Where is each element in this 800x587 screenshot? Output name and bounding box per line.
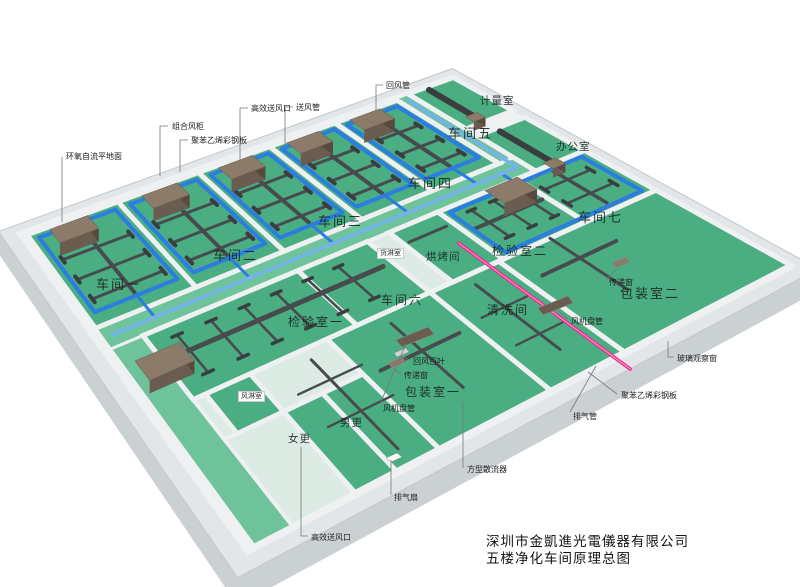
annotation-pass-window-2: 传递窗 <box>609 277 633 288</box>
room-label-cleaning-room: 清洗间 <box>487 301 529 318</box>
annotation-supply-duct: 送风管 <box>296 102 320 113</box>
room-label-cargo-shower: 货淋室 <box>377 248 404 259</box>
annotation-epoxy-floor: 环氧自流平地面 <box>66 151 122 162</box>
room-label-inspection-2: 检验室二 <box>492 242 548 259</box>
drawing-title: 五楼净化车间原理总图 <box>486 550 689 567</box>
room-label-workshop-6: 车间六 <box>381 291 423 308</box>
room-label-women-change: 女更 <box>288 431 311 446</box>
room-label-metering-room: 计量室 <box>480 93 515 108</box>
annotation-polystyrene-panel-1: 聚苯乙烯彩钢板 <box>191 135 247 146</box>
annotation-return-duct: 回风管 <box>386 80 410 91</box>
room-label-workshop-1: 车间一 <box>96 274 141 293</box>
room-label-baking-room: 烘烤间 <box>426 249 461 264</box>
room-label-men-change: 男更 <box>340 415 363 430</box>
cleanroom-isometric-diagram: 车间一 车间二 车间三 车间四 车间五 车间六 车间七 检验室一 检验室二 烘烤… <box>0 0 800 587</box>
room-label-workshop-7: 车间七 <box>578 207 623 226</box>
annotation-return-louver: 回风百叶 <box>413 356 445 367</box>
annotation-combined-ahu: 组合风柜 <box>172 121 204 132</box>
title-block: 深圳市金凱進光電儀器有限公司 五楼净化车间原理总图 <box>486 533 689 567</box>
annotation-exhaust-fan: 排气扇 <box>394 492 418 503</box>
room-label-workshop-4: 车间四 <box>408 173 453 192</box>
annotation-exhaust-pipe: 排气管 <box>573 411 597 422</box>
room-label-workshop-3: 车间三 <box>318 211 363 230</box>
annotation-hepa-outlet-1: 高效送风口 <box>251 103 291 114</box>
annotation-pass-window-1: 传递窗 <box>404 370 428 381</box>
room-label-air-shower: 风淋室 <box>238 391 265 402</box>
company-name: 深圳市金凱進光電儀器有限公司 <box>486 533 689 550</box>
room-label-inspection-1: 检验室一 <box>288 313 344 330</box>
annotation-polystyrene-panel-2: 聚苯乙烯彩钢板 <box>621 390 677 401</box>
annotation-fan-coil-1: 风机盘管 <box>383 403 415 414</box>
annotation-glass-observation-window: 玻璃观察窗 <box>677 353 717 364</box>
annotation-fan-coil-2: 风机盘管 <box>571 316 603 327</box>
annotation-hepa-outlet-2: 高效送风口 <box>311 532 351 543</box>
room-label-workshop-2: 车间二 <box>213 245 258 264</box>
room-label-office: 办公室 <box>556 139 591 154</box>
annotation-square-diffuser: 方型散流器 <box>467 464 507 475</box>
room-label-workshop-5: 车间五 <box>448 123 493 142</box>
room-label-packing-1: 包装室一 <box>405 383 461 400</box>
